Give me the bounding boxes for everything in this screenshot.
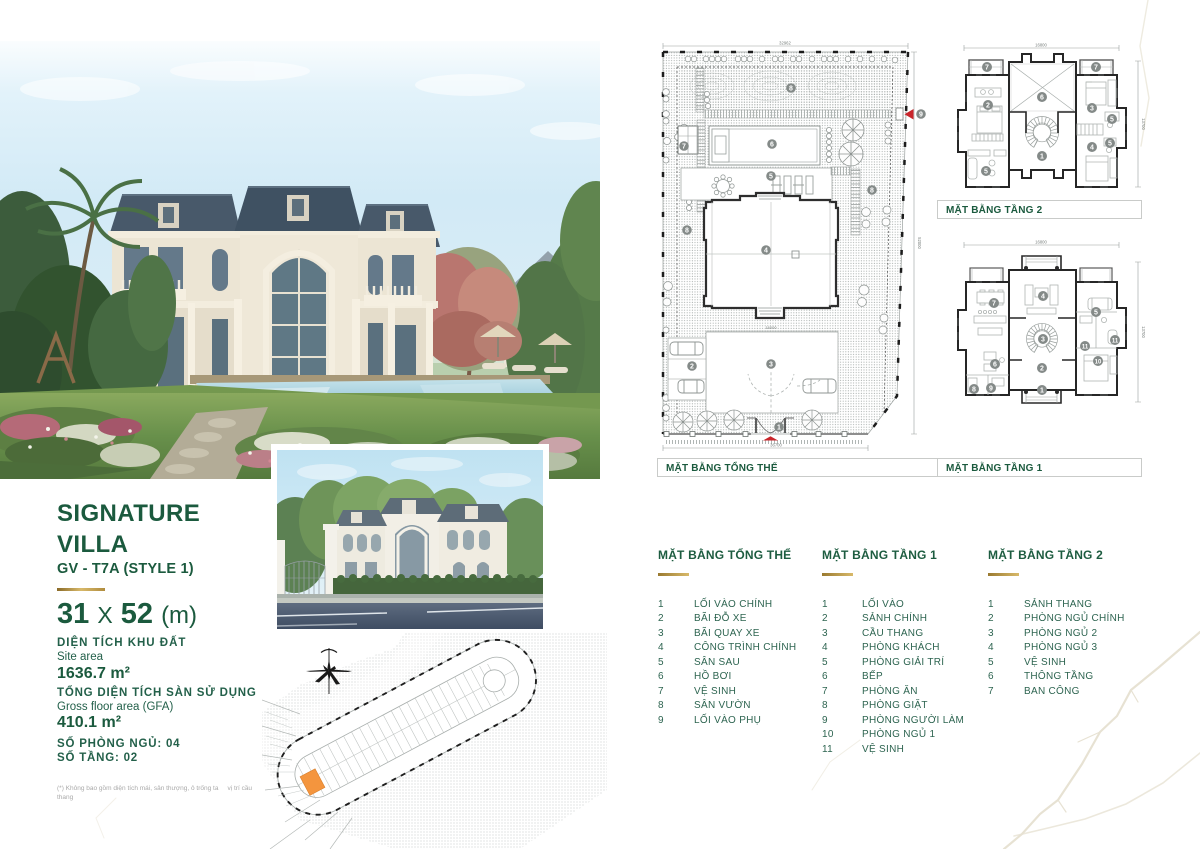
svg-text:3: 3 <box>1041 337 1045 344</box>
svg-text:2: 2 <box>690 364 694 371</box>
svg-text:5: 5 <box>769 174 773 181</box>
svg-text:1: 1 <box>777 425 781 432</box>
svg-text:4: 4 <box>764 248 768 255</box>
svg-text:13700: 13700 <box>1141 326 1146 338</box>
svg-text:1: 1 <box>1040 388 1044 395</box>
svg-text:16000: 16000 <box>765 325 777 330</box>
svg-text:8: 8 <box>685 228 689 235</box>
svg-text:7: 7 <box>992 301 996 308</box>
svg-text:9: 9 <box>919 112 923 119</box>
svg-text:10: 10 <box>1095 360 1102 366</box>
svg-text:7: 7 <box>985 65 989 72</box>
svg-text:5: 5 <box>1108 141 1112 148</box>
svg-text:6: 6 <box>993 362 997 369</box>
svg-text:16800: 16800 <box>1035 43 1047 48</box>
svg-text:5: 5 <box>984 169 988 176</box>
svg-text:2: 2 <box>986 103 990 110</box>
svg-text:4: 4 <box>1090 145 1094 152</box>
svg-text:3: 3 <box>769 362 773 369</box>
svg-text:8: 8 <box>789 86 793 93</box>
svg-text:5: 5 <box>1094 310 1098 317</box>
svg-text:11: 11 <box>1112 339 1119 345</box>
svg-text:8: 8 <box>972 387 976 394</box>
svg-text:6: 6 <box>1040 95 1044 102</box>
svg-text:9: 9 <box>989 386 993 393</box>
svg-text:7: 7 <box>1094 65 1098 72</box>
svg-text:1: 1 <box>1040 154 1044 161</box>
svg-text:6: 6 <box>770 142 774 149</box>
svg-text:8: 8 <box>870 188 874 195</box>
svg-text:2: 2 <box>1040 366 1044 373</box>
svg-text:16800: 16800 <box>1035 240 1047 245</box>
svg-text:52000: 52000 <box>917 237 922 249</box>
svg-text:7: 7 <box>682 144 686 151</box>
svg-text:13700: 13700 <box>1141 118 1146 130</box>
svg-text:11: 11 <box>1082 345 1089 351</box>
svg-text:36700: 36700 <box>770 443 782 448</box>
svg-text:3: 3 <box>1090 106 1094 113</box>
svg-text:32962: 32962 <box>779 41 791 46</box>
svg-text:4: 4 <box>1041 294 1045 301</box>
svg-text:5: 5 <box>1110 117 1114 124</box>
